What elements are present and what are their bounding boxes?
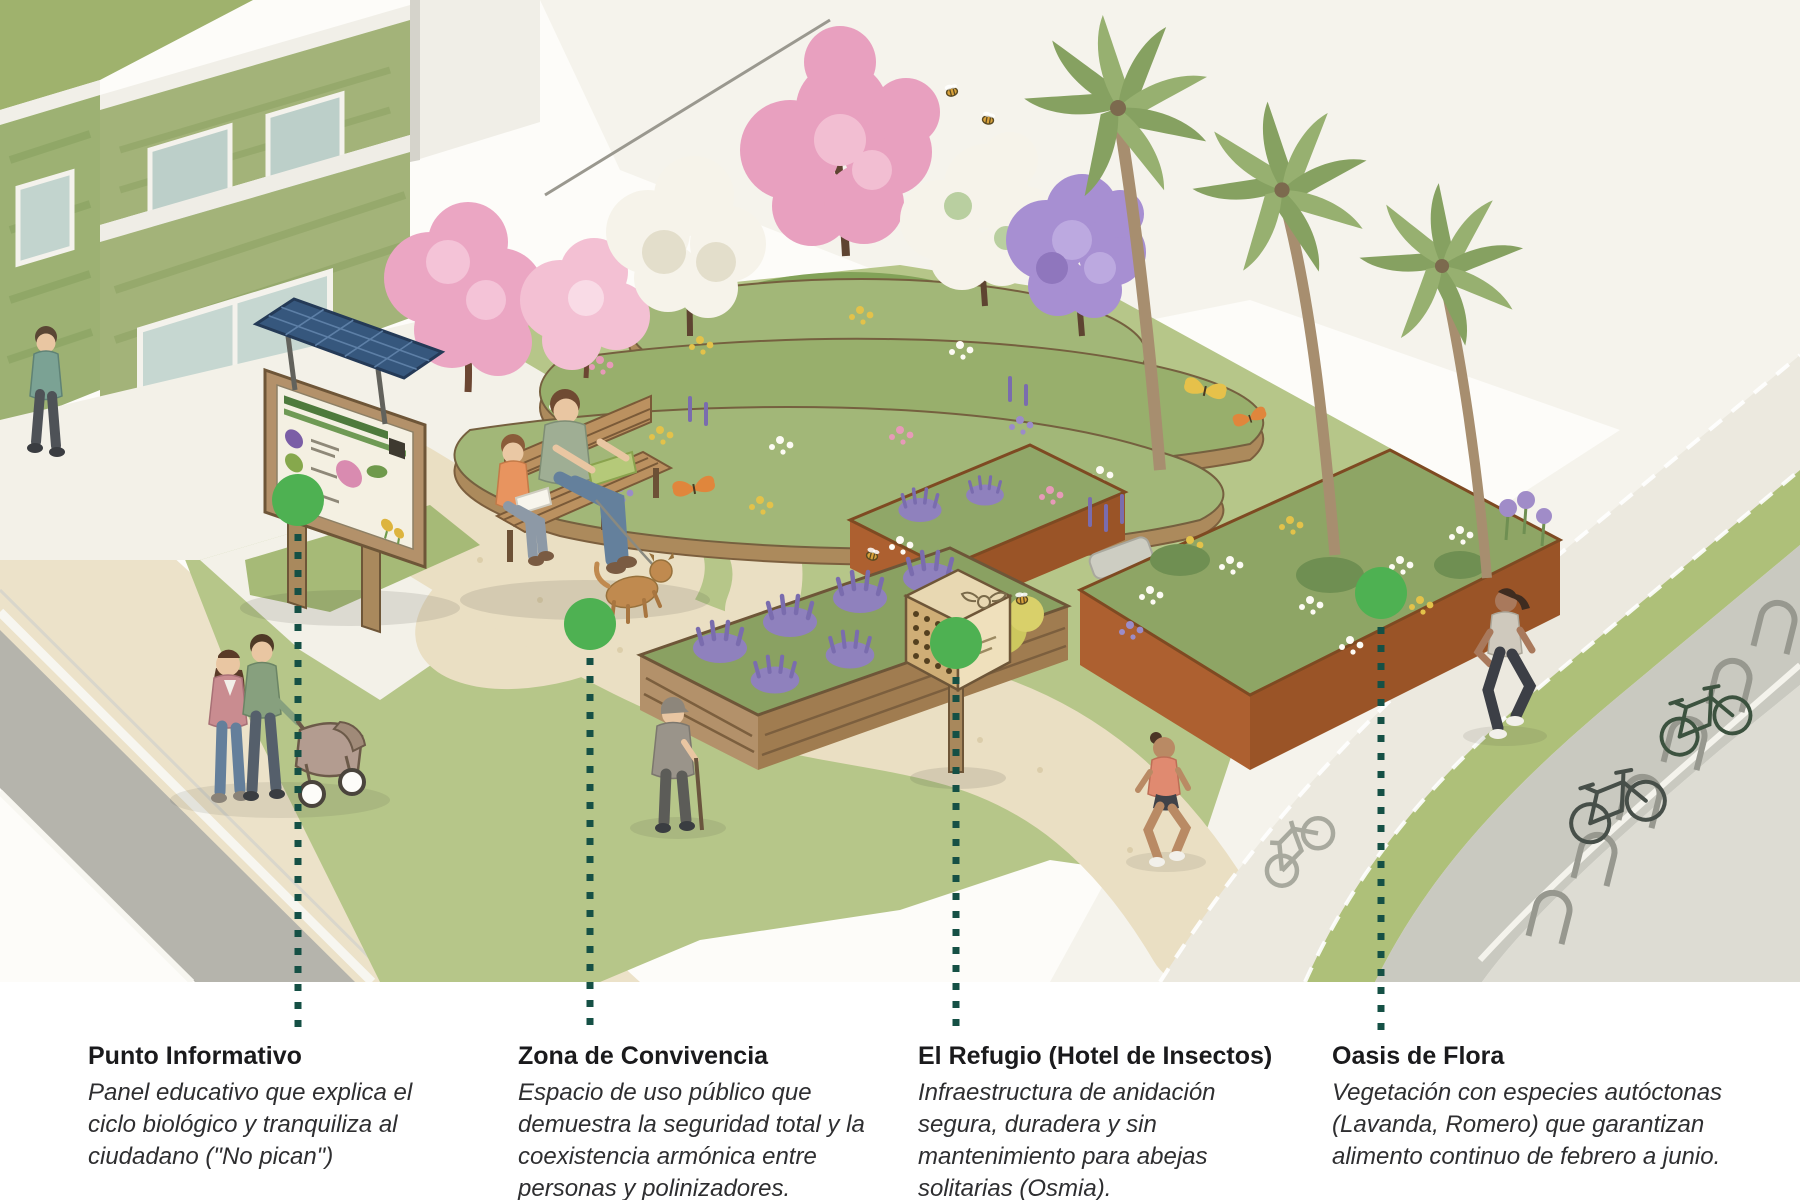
pollinator-garden-infographic: Punto Informativo Panel educativo que ex…	[0, 0, 1800, 1200]
window	[18, 172, 72, 264]
marker-dot	[1355, 567, 1407, 619]
marker-dot	[564, 598, 616, 650]
marker-dot	[930, 617, 982, 669]
marker-dot	[272, 474, 324, 526]
garden-illustration	[0, 0, 1800, 1200]
